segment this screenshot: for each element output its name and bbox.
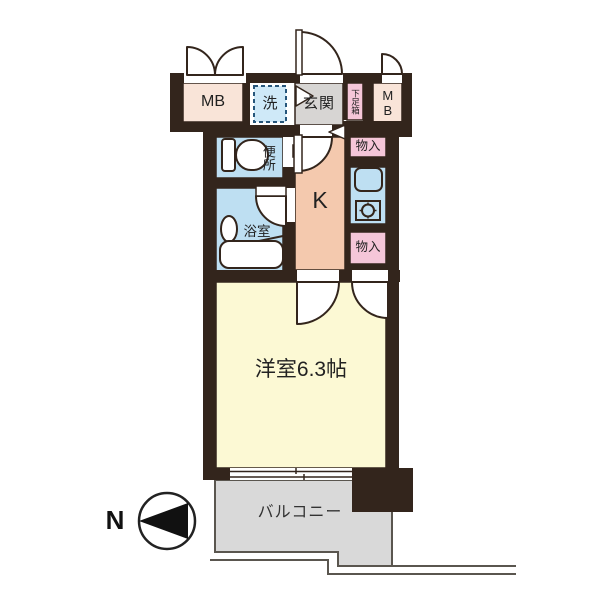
meter-box-right-label: MB [373, 83, 402, 122]
kitchen-label: K [295, 186, 345, 214]
main-room-label: 洋室6.3帖 [216, 357, 386, 383]
toilet-label: 便所 [257, 139, 279, 177]
meter-box-left-label: MB [183, 83, 243, 122]
entrance-door-swing [300, 32, 342, 74]
storage-bottom-label: 物入 [350, 232, 386, 264]
north-label: N [98, 506, 132, 536]
kitchen-door-leaf [294, 135, 302, 173]
balcony-label: バルコニー [220, 502, 380, 524]
shoe-box-label: 下足箱 [347, 84, 363, 120]
bathroom-label: 浴室 [231, 224, 283, 240]
north-compass-icon [139, 493, 195, 549]
toilet-icon [222, 139, 235, 171]
door-swing-arc-icon [187, 47, 215, 75]
balcony-window [230, 468, 352, 480]
door-swing-arc-icon [215, 47, 243, 75]
entrance-door-leaf [296, 30, 302, 75]
entrance-label: 玄関 [295, 83, 343, 125]
door-swing-arc-icon [382, 54, 402, 74]
laundry-label: 洗 [254, 86, 286, 122]
bathroom-door-leaf [256, 186, 286, 196]
bathtub-icon [220, 241, 283, 268]
storage-top-label: 物入 [350, 137, 386, 157]
floorplan-canvas: MB 洗 玄関 下足箱 MB 便所 浴室 K 物入 物入 洋室6.3帖 バルコニ… [0, 0, 600, 600]
